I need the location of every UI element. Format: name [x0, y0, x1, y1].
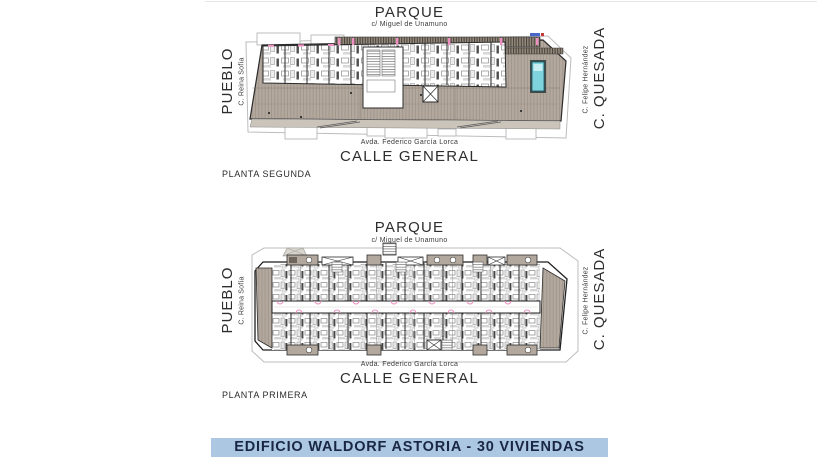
legend-mark-blue — [530, 33, 540, 36]
pool — [530, 60, 546, 93]
plan-title-planta-primera: PLANTA PRIMERA — [222, 390, 308, 400]
plan-title-planta-segunda: PLANTA SEGUNDA — [222, 169, 311, 179]
street-label-pueblo-2: PUEBLO — [219, 240, 237, 360]
walkway-band — [250, 119, 560, 129]
street-label-calle-general-1: CALLE GENERAL — [0, 148, 819, 165]
stairs — [367, 50, 380, 76]
pergola-strip — [505, 48, 563, 54]
legend-mark-red — [541, 33, 544, 36]
balcony-tab — [257, 33, 300, 45]
street-sublabel-garcia-lorca-2: Avda. Federico García Lorca — [0, 361, 819, 368]
core-room — [367, 80, 395, 92]
street-sublabel-miguel-unamuno-1: c/ Miguel de Unamuno — [0, 21, 819, 28]
street-label-pueblo-1: PUEBLO — [219, 21, 237, 141]
balcony-tab — [438, 129, 456, 136]
street-label-quesada-1: C. QUESADA — [591, 18, 609, 138]
floor-plan-drawing-planta-segunda — [240, 30, 580, 145]
stairs — [382, 50, 395, 76]
plan-sheet: PARQUE c/ Miguel de Unamuno PUEBLO C. Re… — [0, 0, 819, 468]
sheet-border-line — [205, 1, 817, 2]
street-sublabel-felipe-hernandez-1: C. Felipe Hernández — [582, 20, 591, 140]
elevator — [423, 86, 438, 102]
terrace-west — [256, 268, 272, 348]
street-sublabel-garcia-lorca-1: Avda. Federico García Lorca — [0, 139, 819, 146]
street-label-calle-general-2: CALLE GENERAL — [0, 370, 819, 387]
building-title-banner: EDIFICIO WALDORF ASTORIA - 30 VIVIENDAS — [211, 438, 608, 457]
street-label-parque-1: PARQUE — [0, 4, 819, 21]
street-label-quesada-2: C. QUESADA — [591, 239, 609, 359]
floor-plan-drawing-planta-primera — [240, 233, 590, 368]
roof-stubs — [283, 243, 396, 256]
balcony-tab — [285, 127, 317, 139]
